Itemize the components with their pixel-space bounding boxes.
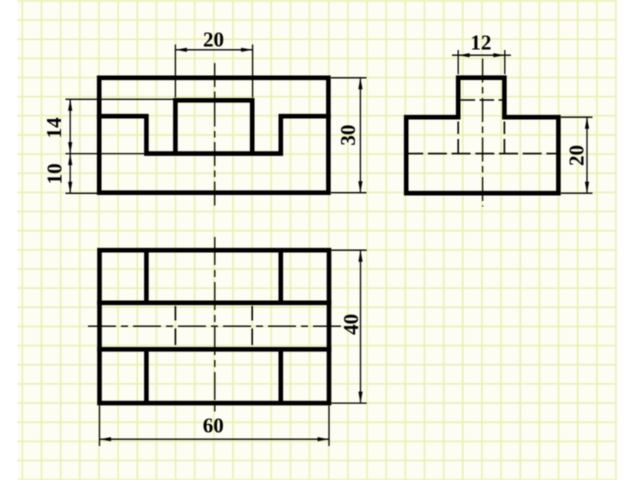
svg-text:60: 60 xyxy=(203,414,224,438)
svg-text:10: 10 xyxy=(43,163,67,184)
svg-text:30: 30 xyxy=(336,125,360,146)
svg-text:20: 20 xyxy=(564,145,588,166)
svg-text:20: 20 xyxy=(203,27,224,51)
svg-text:40: 40 xyxy=(339,314,363,335)
svg-text:12: 12 xyxy=(470,31,491,55)
svg-text:14: 14 xyxy=(42,117,66,138)
